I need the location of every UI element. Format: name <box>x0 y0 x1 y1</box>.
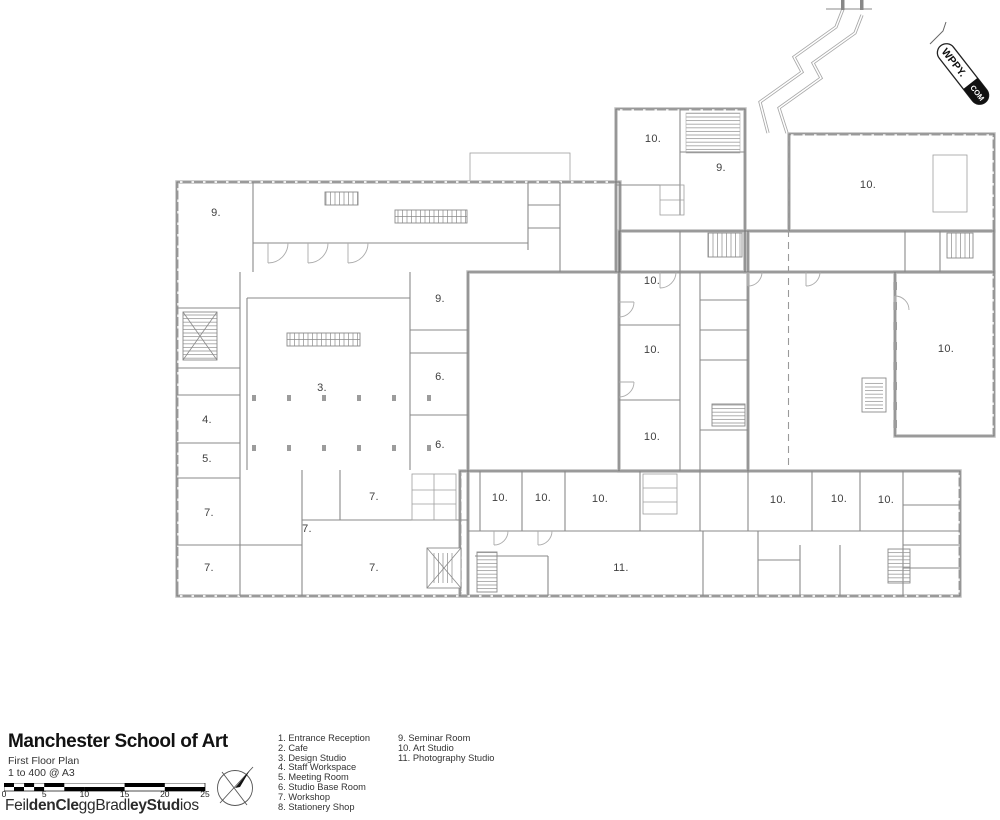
room-number-label: 10. <box>770 494 786 506</box>
drawing-subtitle: First Floor Plan <box>8 755 268 767</box>
room-number-label: 7. <box>369 562 379 574</box>
room-number-label: 10. <box>592 493 608 505</box>
firm-name-segment: ios <box>180 797 199 814</box>
room-number-label: 3. <box>317 382 327 394</box>
room-number-label: 9. <box>716 162 726 174</box>
room-number-label: 10. <box>878 494 894 506</box>
room-number-label: 10. <box>492 492 508 504</box>
room-number-label: 4. <box>202 414 212 426</box>
room-number-label: 9. <box>435 293 445 305</box>
firm-name-segment: gg <box>79 797 96 814</box>
firm-name-segment: denCle <box>29 797 79 814</box>
zigzag-link-bridge <box>760 0 872 133</box>
legend-column-1: 1. Entrance Reception2. Cafe3. Design St… <box>278 734 370 812</box>
room-number-label: 7. <box>369 491 379 503</box>
room-number-label: 10. <box>644 275 660 287</box>
room-legend: 1. Entrance Reception2. Cafe3. Design St… <box>278 734 494 812</box>
title-block: Manchester School of Art First Floor Pla… <box>8 731 268 779</box>
room-number-label: 10. <box>645 133 661 145</box>
legend-column-2: 9. Seminar Room10. Art Studio11. Photogr… <box>398 734 494 812</box>
firm-name-segment: Feil <box>5 797 29 814</box>
room-number-label: 10. <box>938 343 954 355</box>
floor-plan-drawing: WPPY. COM <box>0 0 1000 820</box>
room-number-label: 9. <box>211 207 221 219</box>
room-number-label: 6. <box>435 439 445 451</box>
entrance-canopy <box>470 153 570 182</box>
legend-item: 11. Photography Studio <box>398 754 494 764</box>
room-number-label: 10. <box>644 344 660 356</box>
room-number-label: 11. <box>613 562 628 574</box>
drawing-title: Manchester School of Art <box>8 731 268 752</box>
room-number-label: 6. <box>435 371 445 383</box>
room-number-label: 7. <box>302 523 312 535</box>
room-number-label: 10. <box>535 492 551 504</box>
scale-number: 25 <box>200 789 209 799</box>
room-number-label: 7. <box>204 507 214 519</box>
floor-plan: WPPY. COM 9.10.9.10.9.10.10.10.3.6.4.10.… <box>0 0 1000 820</box>
room-number-label: 5. <box>202 453 212 465</box>
room-number-label: 10. <box>644 431 660 443</box>
firm-name-segment: Bradl <box>95 797 130 814</box>
room-number-label: 10. <box>831 493 847 505</box>
room-number-label: 10. <box>860 179 876 191</box>
scale-bar-graphic <box>4 783 214 793</box>
scale-bar: 0510152025 <box>4 780 214 798</box>
legend-item: 8. Stationery Shop <box>278 803 370 813</box>
room-number-label: 7. <box>204 562 214 574</box>
watermark-pen: WPPY. COM <box>930 22 992 108</box>
firm-name: FeildenCleggBradleyStudios <box>5 797 199 815</box>
firm-name-segment: eyStud <box>130 797 180 814</box>
drawing-scale-note: 1 to 400 @ A3 <box>8 767 268 779</box>
